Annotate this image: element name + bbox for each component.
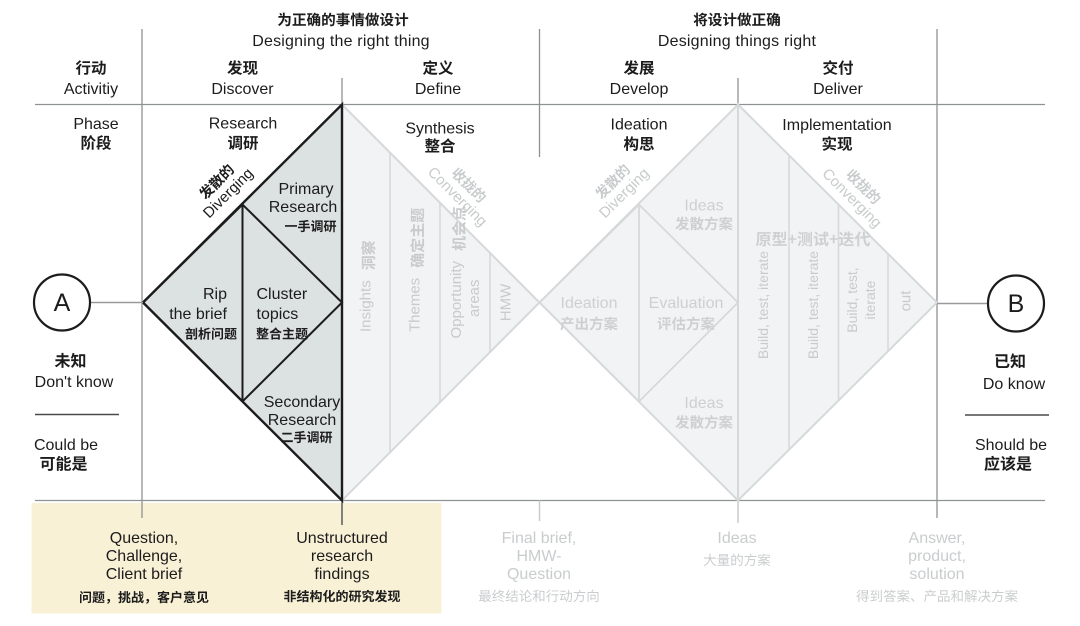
svg-text:Insights: Insights — [358, 280, 375, 332]
svg-text:Activitiy: Activitiy — [64, 81, 118, 98]
svg-text:Challenge,: Challenge, — [106, 548, 183, 565]
svg-text:Ideas: Ideas — [684, 198, 723, 215]
svg-text:HMW: HMW — [498, 283, 515, 321]
svg-text:Research: Research — [269, 199, 337, 216]
svg-text:Opportunity: Opportunity — [448, 260, 465, 338]
svg-text:Answer,: Answer, — [909, 530, 966, 547]
svg-text:Themes: Themes — [407, 278, 424, 332]
svg-text:research: research — [311, 548, 373, 565]
svg-text:solution: solution — [909, 566, 964, 583]
svg-text:Ideation: Ideation — [611, 117, 668, 134]
svg-text:HMW-: HMW- — [516, 548, 561, 565]
svg-text:Final brief,: Final brief, — [502, 530, 577, 547]
svg-text:Primary: Primary — [278, 181, 333, 198]
svg-text:Research: Research — [209, 116, 277, 133]
svg-text:Ideas: Ideas — [684, 395, 723, 412]
svg-text:Deliver: Deliver — [813, 81, 863, 98]
svg-text:Could be: Could be — [34, 437, 98, 454]
svg-text:Question: Question — [507, 566, 571, 583]
svg-text:Research: Research — [268, 412, 336, 429]
svg-text:areas: areas — [466, 279, 483, 317]
svg-text:Cluster: Cluster — [257, 286, 308, 303]
svg-text:the brief: the brief — [169, 306, 227, 323]
svg-text:Ideation: Ideation — [561, 295, 618, 312]
svg-text:Phase: Phase — [73, 116, 118, 133]
svg-text:product,: product, — [908, 548, 966, 565]
svg-text:Build, test, iterate: Build, test, iterate — [755, 251, 771, 359]
svg-text:A: A — [54, 289, 71, 317]
svg-text:Designing things right: Designing things right — [658, 33, 817, 50]
svg-text:Don't know: Don't know — [35, 374, 114, 391]
svg-text:out: out — [898, 290, 915, 312]
svg-text:Should be: Should be — [975, 437, 1047, 454]
svg-text:Rip: Rip — [203, 286, 227, 303]
svg-text:B: B — [1008, 290, 1025, 318]
svg-text:Build, test, iterate: Build, test, iterate — [805, 251, 821, 359]
svg-text:Build, test,: Build, test, — [844, 267, 860, 332]
svg-text:Question,: Question, — [110, 530, 178, 547]
svg-text:Define: Define — [415, 81, 461, 98]
svg-text:Implementation: Implementation — [782, 117, 891, 134]
svg-text:Designing the right thing: Designing the right thing — [252, 33, 430, 50]
svg-text:Synthesis: Synthesis — [405, 121, 474, 138]
svg-text:iterate: iterate — [862, 280, 878, 319]
svg-text:Unstructured: Unstructured — [296, 530, 388, 547]
svg-text:Do know: Do know — [983, 376, 1046, 393]
svg-text:Client brief: Client brief — [106, 566, 183, 583]
svg-text:Ideas: Ideas — [717, 530, 756, 547]
svg-text:Discover: Discover — [211, 81, 274, 98]
svg-text:findings: findings — [314, 566, 369, 583]
svg-text:topics: topics — [257, 306, 299, 323]
svg-text:Secondary: Secondary — [264, 394, 341, 411]
svg-text:Develop: Develop — [610, 81, 669, 98]
svg-text:Evaluation: Evaluation — [649, 295, 724, 312]
